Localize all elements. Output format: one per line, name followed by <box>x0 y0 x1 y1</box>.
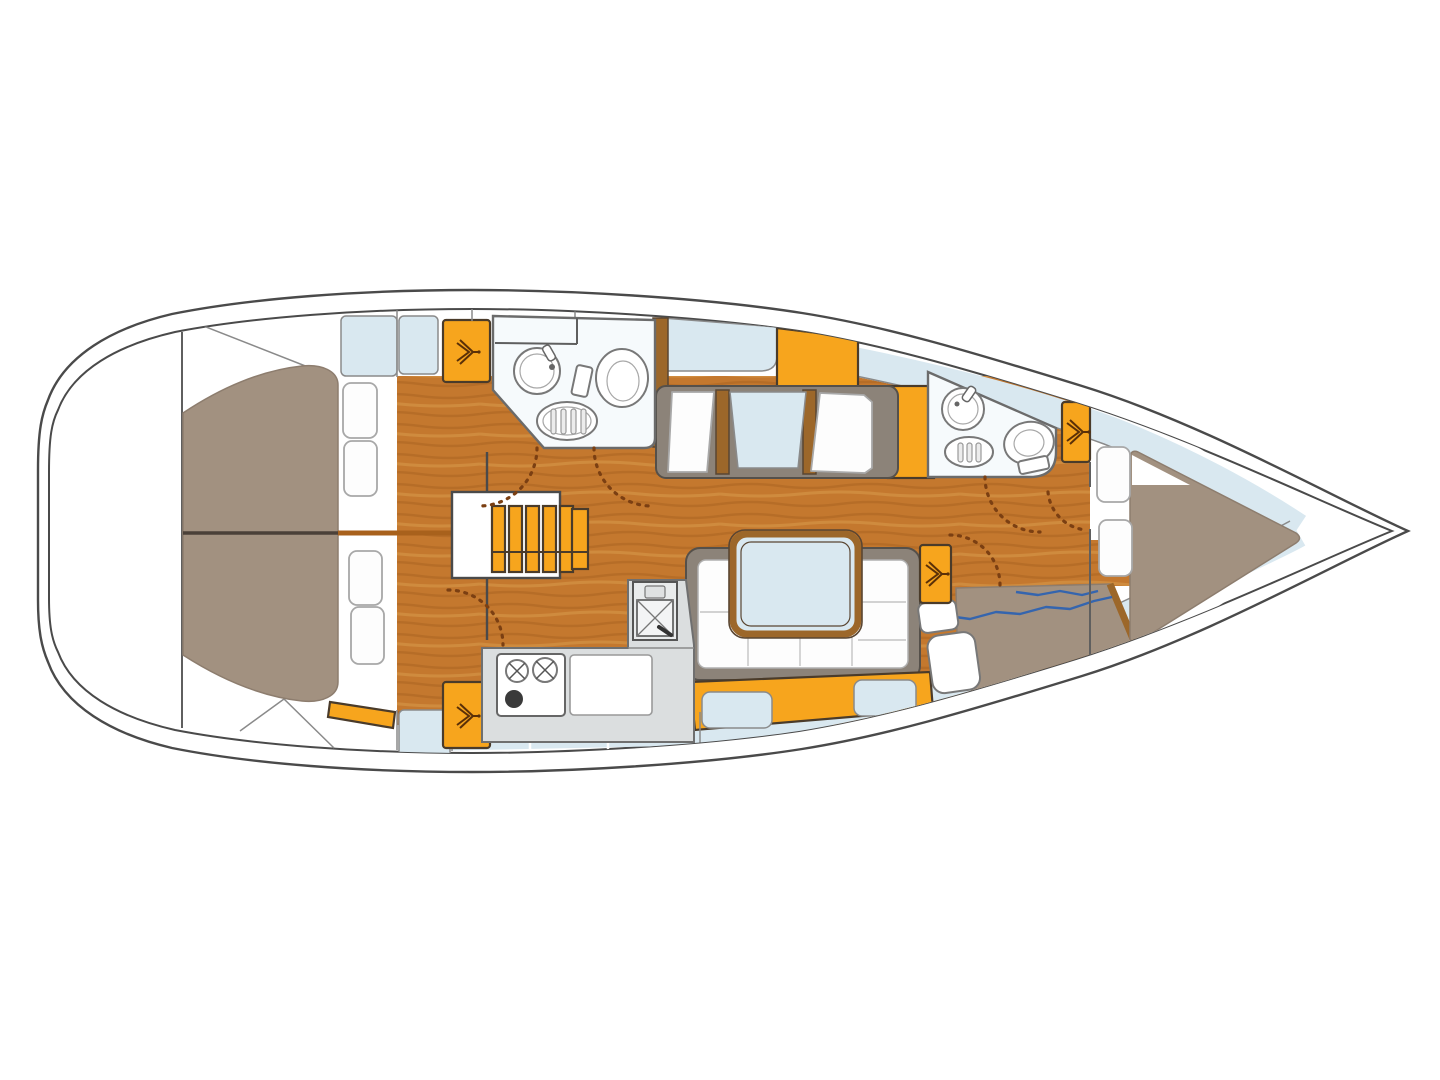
aft-shelf <box>399 316 438 374</box>
aft-pillow <box>343 383 377 438</box>
backrest-cushion <box>702 692 772 728</box>
saloon-table-top <box>736 537 855 631</box>
aft-shelf <box>341 316 397 376</box>
port-shelf <box>663 318 777 371</box>
shower-grate-icon <box>537 402 597 440</box>
port-settee <box>656 386 898 478</box>
aft-pillow <box>344 441 377 496</box>
forward-pillow <box>1097 447 1130 502</box>
sink-faucet-icon <box>645 586 665 598</box>
stove-knob-icon <box>505 690 523 708</box>
aft-pillow <box>349 551 382 605</box>
settee-seat <box>811 393 872 473</box>
boat-floor-plan <box>0 0 1440 1080</box>
galley-worktop <box>570 655 652 715</box>
settee-table <box>730 392 806 468</box>
settee-seat <box>668 392 714 472</box>
aft-pillow <box>351 607 384 664</box>
forward-pillow <box>1099 520 1132 576</box>
toilet-icon <box>596 349 648 407</box>
dinette <box>686 530 933 730</box>
